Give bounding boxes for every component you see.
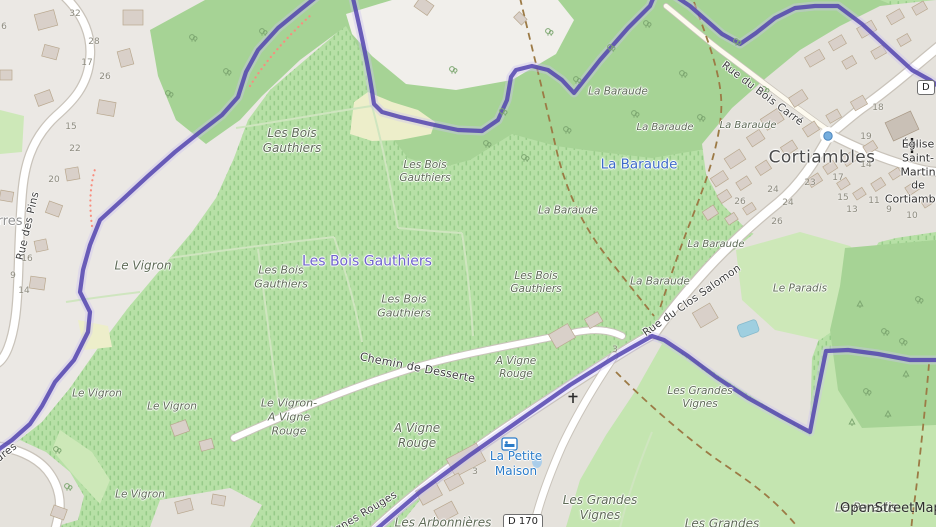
mini-roundabout-icon[interactable] [824, 132, 832, 140]
lodging-bed-icon[interactable] [502, 438, 517, 450]
map-canvas[interactable]: Le Vigron Les Bois Gauthiers Les Bois Ga… [0, 0, 936, 527]
map-tiles [0, 0, 936, 527]
road-shield-partial: D [917, 80, 935, 95]
grass-patch [0, 110, 24, 154]
road-shield-d170: D 170 [503, 514, 543, 527]
small-pond [532, 454, 542, 468]
osm-attribution-link[interactable]: OpenStreetMap [840, 501, 936, 516]
woodland-east [830, 240, 936, 428]
